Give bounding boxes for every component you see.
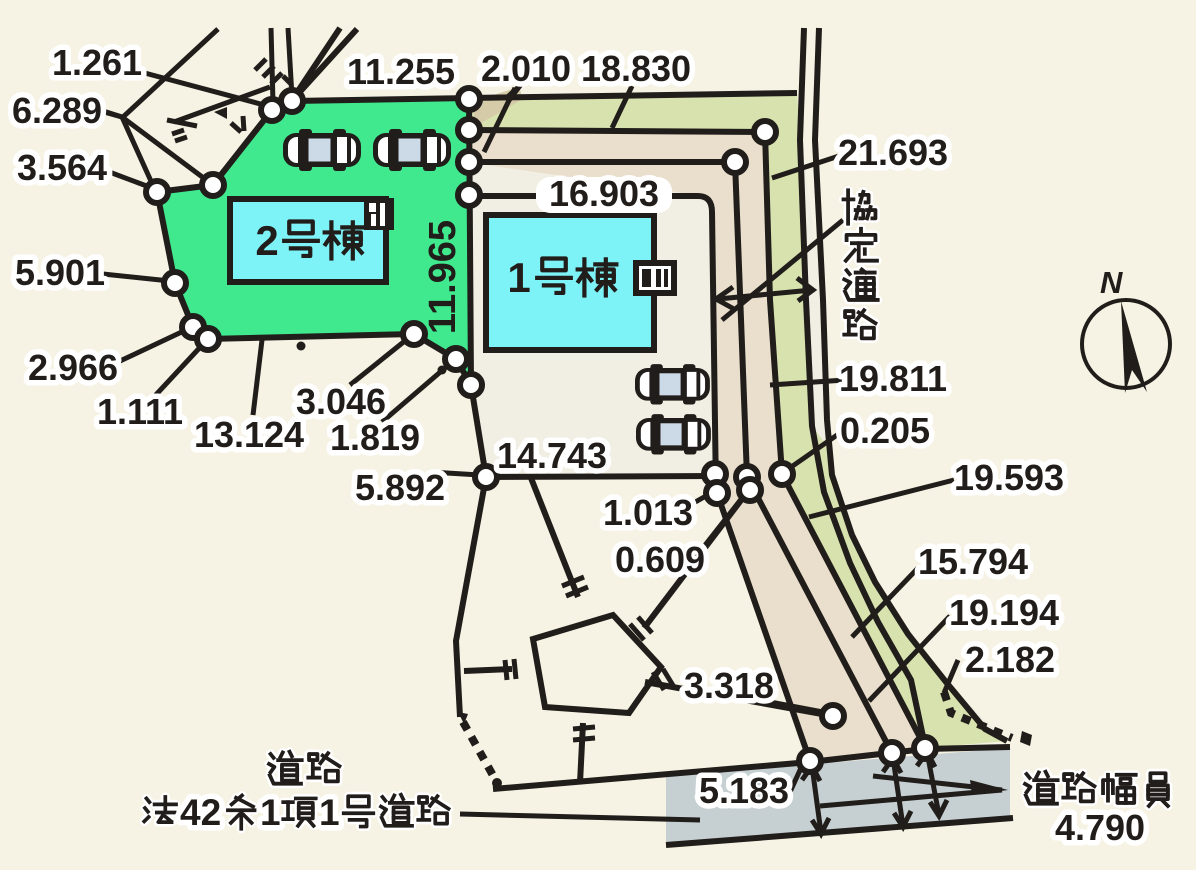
svg-text:5.183: 5.183 <box>699 770 789 811</box>
svg-text:16.903: 16.903 <box>549 173 659 214</box>
svg-text:4.790: 4.790 <box>1055 807 1145 848</box>
svg-text:19.811: 19.811 <box>839 358 947 399</box>
svg-text:1.013: 1.013 <box>603 492 693 533</box>
svg-text:14.743: 14.743 <box>497 435 607 476</box>
svg-text:18.830: 18.830 <box>581 48 691 89</box>
svg-text:19.593: 19.593 <box>954 457 1064 498</box>
svg-text:2: 2 <box>255 217 278 264</box>
svg-text:6.289: 6.289 <box>12 90 102 131</box>
svg-text:1: 1 <box>319 792 340 833</box>
svg-text:0.205: 0.205 <box>840 410 930 451</box>
svg-text:1.111: 1.111 <box>97 391 183 432</box>
svg-text:3.046: 3.046 <box>296 381 386 422</box>
svg-text:21.693: 21.693 <box>838 132 948 173</box>
svg-text:3.564: 3.564 <box>17 147 107 188</box>
svg-text:15.794: 15.794 <box>918 541 1028 582</box>
svg-text:1: 1 <box>507 254 530 301</box>
svg-text:19.194: 19.194 <box>949 592 1059 633</box>
svg-text:1.261: 1.261 <box>52 42 142 83</box>
svg-text:1.819: 1.819 <box>330 417 420 458</box>
svg-text:1: 1 <box>260 792 281 833</box>
svg-text:N: N <box>1100 265 1123 300</box>
svg-text:2.966: 2.966 <box>28 347 118 388</box>
svg-text:11.965: 11.965 <box>422 220 464 334</box>
svg-text:5.901: 5.901 <box>15 252 105 293</box>
svg-text:3.318: 3.318 <box>684 665 774 706</box>
svg-text:42: 42 <box>180 792 221 833</box>
svg-text:2.010: 2.010 <box>481 48 571 89</box>
svg-text:5.892: 5.892 <box>355 467 445 508</box>
svg-text:13.124: 13.124 <box>194 414 304 455</box>
svg-text:2.182: 2.182 <box>965 639 1055 680</box>
svg-text:0.609: 0.609 <box>615 539 705 580</box>
svg-text:11.255: 11.255 <box>347 51 455 92</box>
